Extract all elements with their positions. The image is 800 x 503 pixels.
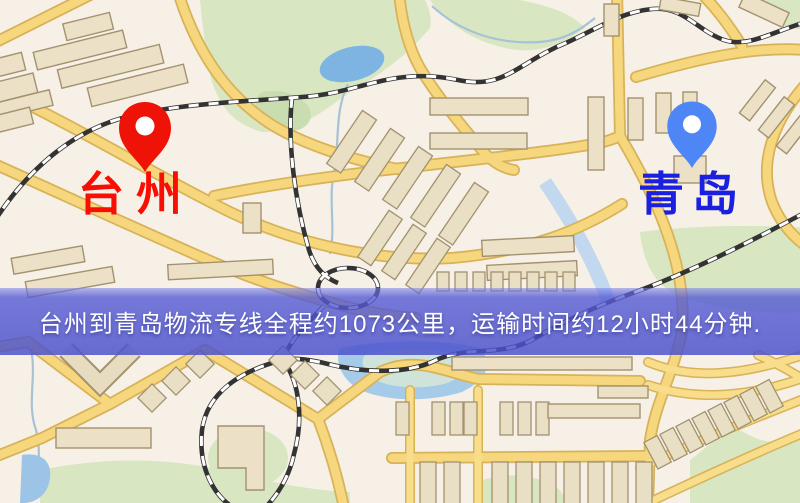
route-info-text: 台州到青岛物流专线全程约1073公里，运输时间约12小时44分钟. [33, 304, 767, 339]
route-info-banner: 台州到青岛物流专线全程约1073公里，运输时间约12小时44分钟. [0, 288, 800, 355]
map-canvas[interactable] [0, 0, 800, 503]
destination-city-label: 青岛 [638, 172, 746, 218]
logistics-route-map: 台州 青岛 台州到青岛物流专线全程约1073公里，运输时间约12小时44分钟. [0, 0, 800, 503]
origin-city-label: 台州 [78, 172, 194, 218]
